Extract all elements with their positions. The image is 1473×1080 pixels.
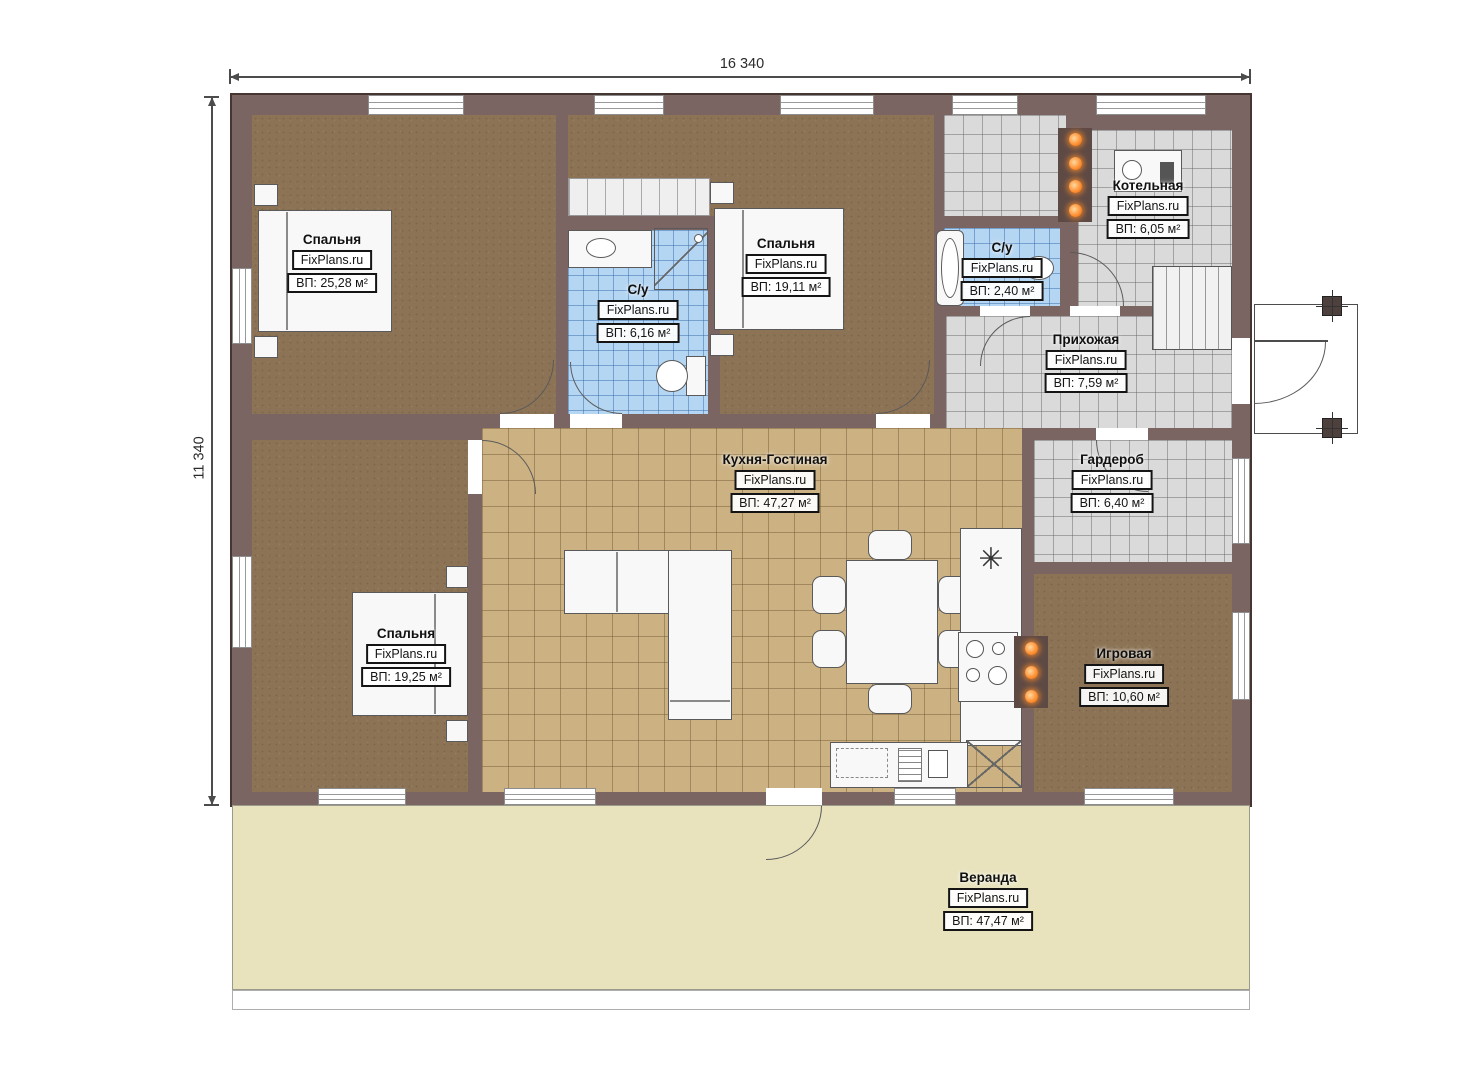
room-label-bedroom-2: Спальня FixPlans.ru ВП: 19,11 м² bbox=[742, 236, 831, 300]
chair bbox=[812, 576, 846, 614]
dimension-width-label: 16 340 bbox=[720, 56, 764, 72]
window bbox=[318, 788, 406, 805]
dimension-arrow bbox=[230, 73, 239, 81]
veranda-door-opening bbox=[766, 788, 822, 805]
room-area: ВП: 6,16 м² bbox=[597, 323, 680, 343]
room-name: Спальня bbox=[287, 232, 377, 247]
nightstand bbox=[710, 334, 734, 356]
wall bbox=[944, 216, 1066, 228]
room-floor-boiler-lobby bbox=[944, 115, 1066, 216]
sink-drainer-icon bbox=[898, 748, 922, 782]
room-label-bedroom-3: Спальня FixPlans.ru ВП: 19,25 м² bbox=[361, 626, 451, 690]
window bbox=[368, 95, 464, 115]
room-area: ВП: 10,60 м² bbox=[1079, 687, 1169, 707]
porch-post bbox=[1322, 418, 1342, 438]
window bbox=[780, 95, 874, 115]
window bbox=[1232, 458, 1250, 544]
brand-badge: FixPlans.ru bbox=[1046, 350, 1127, 370]
burner-icon bbox=[988, 666, 1007, 685]
room-label-hallway: Прихожая FixPlans.ru ВП: 7,59 м² bbox=[1045, 332, 1128, 396]
room-area: ВП: 47,47 м² bbox=[943, 911, 1033, 931]
veranda-step bbox=[232, 990, 1250, 1010]
nightstand bbox=[446, 566, 468, 588]
room-label-boiler-room: Котельная FixPlans.ru ВП: 6,05 м² bbox=[1107, 178, 1190, 242]
radiator-icon bbox=[1069, 157, 1082, 170]
radiator-icon bbox=[1069, 133, 1082, 146]
chair bbox=[812, 630, 846, 668]
room-label-bathroom-2: С/у FixPlans.ru ВП: 2,40 м² bbox=[961, 240, 1044, 304]
dishwasher-outline bbox=[836, 748, 888, 778]
chair bbox=[868, 684, 912, 714]
burner-icon bbox=[992, 642, 1005, 655]
brand-badge: FixPlans.ru bbox=[735, 470, 816, 490]
toilet-bowl-icon bbox=[656, 360, 688, 392]
brand-badge: FixPlans.ru bbox=[1108, 196, 1189, 216]
dimension-width-line bbox=[230, 76, 1250, 78]
sofa-cushion-line bbox=[616, 552, 618, 612]
room-area: ВП: 47,27 м² bbox=[730, 493, 820, 513]
brand-badge: FixPlans.ru bbox=[746, 254, 827, 274]
room-label-bathroom-1: С/у FixPlans.ru ВП: 6,16 м² bbox=[597, 282, 680, 346]
room-name: Игровая bbox=[1079, 646, 1169, 661]
radiator-icon bbox=[1069, 204, 1082, 217]
window bbox=[594, 95, 664, 115]
brand-badge: FixPlans.ru bbox=[1072, 470, 1153, 490]
brand-badge: FixPlans.ru bbox=[598, 300, 679, 320]
brand-badge: FixPlans.ru bbox=[948, 888, 1029, 908]
nightstand bbox=[254, 184, 278, 206]
floor-plan-canvas: 16 340 11 340 bbox=[0, 0, 1473, 1080]
shower-head-icon bbox=[694, 234, 703, 243]
nightstand bbox=[254, 336, 278, 358]
veranda-floor bbox=[232, 805, 1250, 990]
window bbox=[232, 556, 252, 648]
toilet-tank bbox=[686, 356, 706, 396]
brand-badge: FixPlans.ru bbox=[366, 644, 447, 664]
room-name: Котельная bbox=[1107, 178, 1190, 193]
chair bbox=[868, 530, 912, 560]
dimension-height-label: 11 340 bbox=[192, 436, 208, 479]
window bbox=[1096, 95, 1206, 115]
brand-badge: FixPlans.ru bbox=[962, 258, 1043, 278]
room-area: ВП: 6,40 м² bbox=[1071, 493, 1154, 513]
radiator-bank-boiler bbox=[1058, 128, 1092, 222]
porch-post bbox=[1322, 296, 1342, 316]
room-name: Прихожая bbox=[1045, 332, 1128, 347]
dimension-height-line bbox=[211, 97, 213, 805]
door-opening bbox=[876, 414, 930, 428]
corner-cabinet bbox=[966, 740, 1022, 788]
room-area: ВП: 25,28 м² bbox=[287, 273, 377, 293]
room-label-bedroom-1: Спальня FixPlans.ru ВП: 25,28 м² bbox=[287, 232, 377, 296]
window bbox=[1084, 788, 1174, 805]
room-name: С/у bbox=[961, 240, 1044, 255]
door-opening bbox=[570, 414, 622, 428]
room-label-playroom: Игровая FixPlans.ru ВП: 10,60 м² bbox=[1079, 646, 1169, 710]
window bbox=[232, 268, 252, 344]
radiator-icon bbox=[1025, 642, 1038, 655]
room-label-veranda: Веранда FixPlans.ru ВП: 47,47 м² bbox=[943, 870, 1033, 934]
radiator-icon bbox=[1069, 180, 1082, 193]
bathtub-basin-icon bbox=[941, 238, 959, 298]
room-label-kitchen-living: Кухня-Гостиная FixPlans.ru ВП: 47,27 м² bbox=[723, 452, 828, 516]
window bbox=[504, 788, 596, 805]
room-area: ВП: 6,05 м² bbox=[1107, 219, 1190, 239]
sofa-cushion-line bbox=[670, 700, 730, 702]
door-opening bbox=[1096, 428, 1148, 440]
stairs bbox=[1152, 266, 1232, 350]
door-opening bbox=[980, 306, 1030, 316]
room-area: ВП: 2,40 м² bbox=[961, 281, 1044, 301]
wardrobe-shelving bbox=[568, 178, 710, 216]
room-name: Гардероб bbox=[1071, 452, 1154, 467]
door-opening bbox=[500, 414, 554, 428]
room-name: Спальня bbox=[361, 626, 451, 641]
kitchen-sink-icon bbox=[928, 750, 948, 778]
sofa bbox=[668, 550, 732, 720]
room-name: Веранда bbox=[943, 870, 1033, 885]
room-name: С/у bbox=[597, 282, 680, 297]
window bbox=[894, 788, 956, 805]
nightstand bbox=[446, 720, 468, 742]
door-opening bbox=[468, 440, 482, 494]
radiator-icon bbox=[1025, 690, 1038, 703]
dimension-arrow bbox=[1241, 73, 1250, 81]
dining-table bbox=[846, 560, 938, 684]
boiler-dial-icon bbox=[1122, 160, 1142, 180]
brand-badge: FixPlans.ru bbox=[292, 250, 373, 270]
entrance-door-opening bbox=[1232, 338, 1250, 404]
dimension-arrow bbox=[208, 97, 216, 106]
burner-icon bbox=[966, 640, 984, 658]
door-opening bbox=[1070, 306, 1120, 316]
room-name: Кухня-Гостиная bbox=[723, 452, 828, 467]
radiator-icon bbox=[1025, 666, 1038, 679]
nightstand bbox=[710, 182, 734, 204]
brand-badge: FixPlans.ru bbox=[1084, 664, 1165, 684]
room-area: ВП: 7,59 м² bbox=[1045, 373, 1128, 393]
sink-icon bbox=[586, 238, 616, 258]
radiator-bank-kitchen bbox=[1014, 636, 1048, 708]
room-area: ВП: 19,11 м² bbox=[742, 277, 831, 297]
window bbox=[952, 95, 1018, 115]
room-name: Спальня bbox=[742, 236, 831, 251]
room-label-wardrobe: Гардероб FixPlans.ru ВП: 6,40 м² bbox=[1071, 452, 1154, 516]
dimension-arrow bbox=[208, 796, 216, 805]
window bbox=[1232, 612, 1250, 700]
burner-icon bbox=[966, 668, 980, 682]
cooktop-icon: ✳ bbox=[960, 528, 1022, 590]
room-area: ВП: 19,25 м² bbox=[361, 667, 451, 687]
